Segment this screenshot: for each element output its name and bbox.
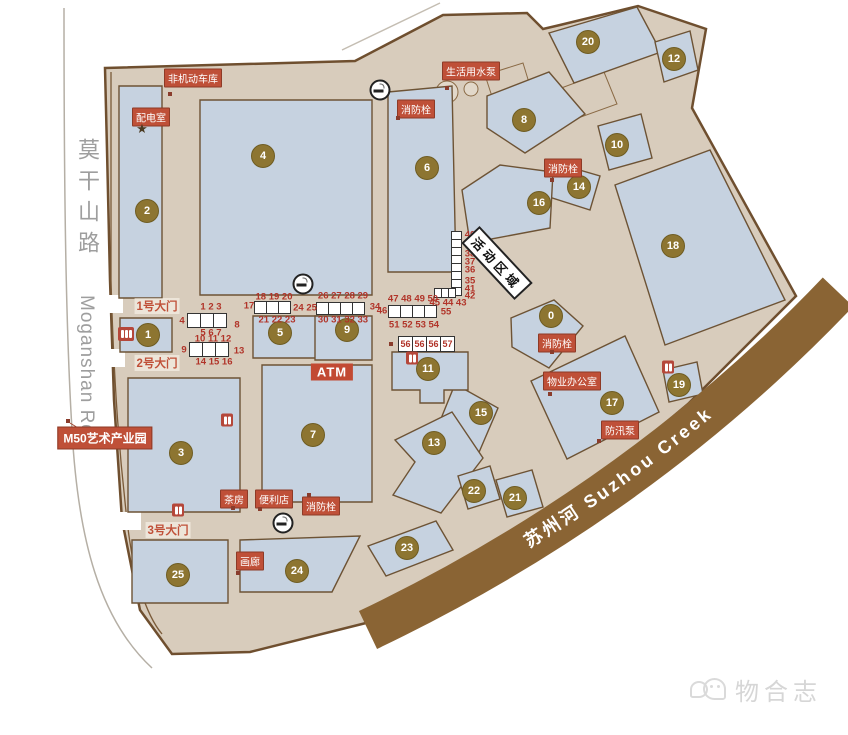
stall-cell [200,313,214,328]
stall-number: 4 [179,316,184,327]
stall-cell: 56 [412,336,427,352]
marker-dot [258,507,262,511]
label-m50-park: M50艺术产业园 [57,427,152,450]
stall-boxes: 56565657 [398,336,455,352]
stall-cell: 57 [440,336,455,352]
road-name-english: Moganshan Rd. [75,295,97,442]
label-flood-pump: 防汛泵 [601,421,639,440]
smoking-area-icon [293,274,314,295]
stall-cell [187,313,201,328]
stall-number: 1 2 3 [200,302,221,313]
marker-dot [236,571,240,575]
building-badge-12: 12 [662,47,686,71]
road-name-chinese: 莫干山路 [71,138,103,262]
stall-boxes [451,231,462,296]
building-badge-3: 3 [169,441,193,465]
building-badge-7: 7 [301,423,325,447]
building-badge-11: 11 [416,357,440,381]
building-badge-14: 14 [567,175,591,199]
building-badge-17: 17 [600,391,624,415]
marker-dot [550,350,554,354]
building-badge-23: 23 [395,536,419,560]
stall-number: 17 [244,301,255,312]
marker-dot [548,392,552,396]
building-badge-4: 4 [251,144,275,168]
label-fire-hydrant-3: 消防栓 [538,334,576,353]
stall-number: 21 22 23 [259,315,296,326]
label-atm: ATM [311,364,353,381]
stall-boxes [316,302,365,315]
building-badge-10: 10 [605,133,629,157]
building-badge-1: 1 [136,323,160,347]
building-badge-8: 8 [512,108,536,132]
smoking-area-icon [370,80,391,101]
marker-dot [168,92,172,96]
marker-dot [396,116,400,120]
toilet-icon [406,352,418,365]
label-fire-hydrant-4: 消防栓 [302,497,340,516]
label-fire-hydrant-1: 消防栓 [397,100,435,119]
smoking-area-icon [273,513,294,534]
building-badge-22: 22 [462,479,486,503]
building-badge-20: 20 [576,30,600,54]
label-gate-2: 2号大门 [135,355,180,371]
building-badge-2: 2 [135,199,159,223]
building-badge-0: 0 [539,304,563,328]
marker-dot [389,342,393,346]
stall-cell [278,301,291,314]
building-badge-25: 25 [166,563,190,587]
chat-bubbles-icon [690,676,726,704]
label-water-pump: 生活用水泵 [442,62,500,81]
building-badge-21: 21 [503,486,527,510]
stall-number: 36 [465,265,476,276]
building-badge-19: 19 [667,373,691,397]
label-non-motor-garage: 非机动车库 [164,69,222,88]
stall-number: 45 44 43 [430,298,467,309]
stall-cell [213,313,227,328]
stall-number: 24 25 [293,303,317,314]
stall-number: 26 27 28 29 [318,291,368,302]
building-badge-15: 15 [469,401,493,425]
label-property-office: 物业办公室 [543,372,601,391]
stall-number: 13 [234,346,245,357]
stall-number: 51 52 53 54 [389,320,439,331]
stall-boxes [254,301,291,314]
label-gate-3: 3号大门 [146,522,191,538]
stall-number: 18 19 20 [256,292,293,303]
building-badge-24: 24 [285,559,309,583]
marker-dot [550,178,554,182]
stall-cell: 56 [398,336,413,352]
toilet-icon [221,414,233,427]
watermark-text: 物合志 [735,672,822,707]
label-fire-hydrant-2: 消防栓 [544,159,582,178]
toilet-icon [172,504,184,517]
marker-dot [307,493,311,497]
label-gallery: 画廊 [236,552,264,571]
stall-number: 8 [234,320,239,331]
turnstile-icon [118,327,134,341]
building-badge-18: 18 [661,234,685,258]
stall-boxes [187,313,227,328]
toilet-icon [662,361,674,374]
stall-cell [352,302,365,315]
marker-dot [597,439,601,443]
m50-park-map: 苏州河 Suzhou Creek 莫干山路 Moganshan Rd. 0123… [0,0,848,735]
map-overlay: 莫干山路 Moganshan Rd. 012345678910111213141… [0,0,848,735]
stall-cell: 56 [426,336,441,352]
label-gate-1: 1号大门 [135,298,180,314]
stall-number: 10 11 12 [195,334,231,345]
building-badge-16: 16 [527,191,551,215]
stall-cell [448,288,456,298]
marker-dot [66,419,70,423]
building-badge-6: 6 [415,156,439,180]
stall-number: 9 [181,345,186,356]
building-badge-13: 13 [422,431,446,455]
watermark: 物合志 [690,672,822,707]
marker-dot [445,86,449,90]
stall-number: 46 [377,306,388,317]
stall-number: 14 15 16 [196,357,233,368]
power-star-icon: ★ [136,121,148,137]
label-convenience-store: 便利店 [255,490,293,509]
marker-dot [231,506,235,510]
stall-number: 30 31 32 33 [318,315,368,326]
